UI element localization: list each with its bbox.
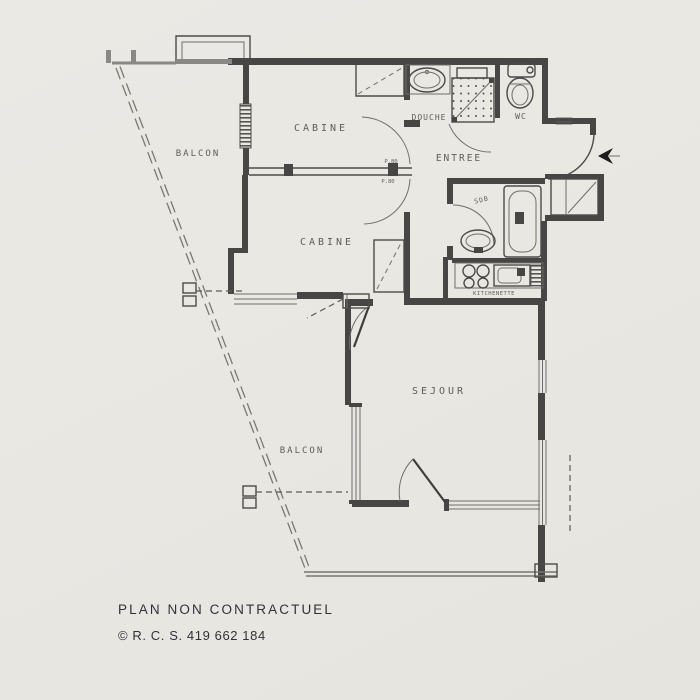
balcony-door-sill-cabine1 [240, 104, 251, 148]
room-label-douche: DOUCHE [412, 113, 447, 122]
wall-sejour-east-2 [538, 393, 545, 440]
wall-cabine2-left-lower [228, 248, 234, 294]
stove-burner [463, 265, 475, 277]
balcony-divider [243, 486, 256, 496]
rcs-number: © R. C. S. 419 662 184 [118, 628, 266, 643]
stove-burner [464, 278, 474, 288]
door-width-label-bottom: P.80 [381, 179, 394, 185]
balcony-edge-diagonal [116, 68, 306, 571]
balcony-divider [183, 283, 196, 293]
room-label-balcon-bottom: BALCON [280, 446, 325, 456]
door-arc-balcony [399, 459, 413, 501]
room-label-sdb: SDB [473, 194, 489, 205]
building-walls [176, 36, 604, 582]
balcony-divider [183, 296, 196, 306]
room-label-kitchenette: KITCHENETTE [473, 291, 515, 297]
wall-cabine1-left-lower [243, 148, 249, 175]
stove-burner [477, 265, 489, 277]
wall-sdb-top [447, 178, 545, 184]
wall-kitchen-edge [452, 258, 544, 263]
wall-kitchen-stub [443, 257, 448, 302]
window-leaf-cabine2 [307, 299, 343, 318]
wall-sdb-left-upper [447, 184, 453, 204]
wall-sejour-east-3 [538, 525, 545, 582]
wall-right-placard [598, 174, 604, 220]
balcony-divider [243, 498, 256, 508]
wall-cabine2-left-upper [242, 175, 248, 252]
wall-sejour-west [345, 306, 351, 405]
wall-cabine1-left-upper [243, 64, 249, 104]
wardrobe-entree [551, 179, 598, 215]
room-label-cabine-1: CABINE [294, 123, 348, 134]
kitchen-tap [517, 268, 525, 276]
scanned-floor-plan-page: BALCON CABINE DOUCHE WC ENTREE CABINE SD… [0, 0, 700, 700]
wall-right-upper [542, 60, 548, 121]
shower-tray [452, 68, 494, 122]
door-leaf-balcony [413, 459, 445, 502]
room-label-entree: ENTREE [436, 153, 482, 164]
disclaimer-text: PLAN NON CONTRACTUEL [118, 602, 334, 617]
door-arc-douche [449, 124, 491, 152]
washbasin-sdb [461, 230, 495, 253]
room-label-sejour: SEJOUR [412, 386, 466, 397]
door-arc-sdb [453, 205, 494, 246]
wall-entry-jamb [590, 118, 596, 135]
floor-plan-drawing: BALCON CABINE DOUCHE WC ENTREE CABINE SD… [0, 0, 700, 700]
wall-top-left [176, 59, 232, 64]
wardrobe-cabine1 [356, 65, 404, 96]
room-label-balcon-top: BALCON [176, 149, 221, 159]
wall-sejour-east-1 [538, 305, 545, 360]
wall-wc-divider [495, 60, 500, 118]
stove-burner [478, 278, 488, 288]
wall-cabine2-bottom [297, 292, 343, 299]
bathtub [504, 186, 541, 257]
window-post [349, 403, 362, 407]
kitchenette-counter [455, 263, 544, 288]
wardrobe-cabine2 [374, 240, 404, 292]
wall-placard-bottom [545, 215, 604, 221]
wall-sejour-top [404, 298, 545, 305]
door-stop [284, 164, 293, 176]
door-arc-cabine1 [362, 117, 410, 164]
balcony-edge-diagonal [120, 67, 310, 570]
door-width-label-top: P.80 [384, 159, 397, 165]
wall-cabine2-right [404, 212, 410, 298]
room-label-cabine-2: CABINE [300, 237, 354, 248]
entry-threshold [556, 118, 572, 124]
toilet [507, 64, 535, 108]
door-arc-entry [548, 134, 594, 179]
kitchen-drainer [531, 265, 544, 286]
door-arc-cabine2 [364, 179, 410, 224]
washbasin-douche [406, 65, 450, 94]
wall-sejour-bottom-left [352, 500, 409, 507]
room-label-wc: WC [515, 112, 527, 121]
